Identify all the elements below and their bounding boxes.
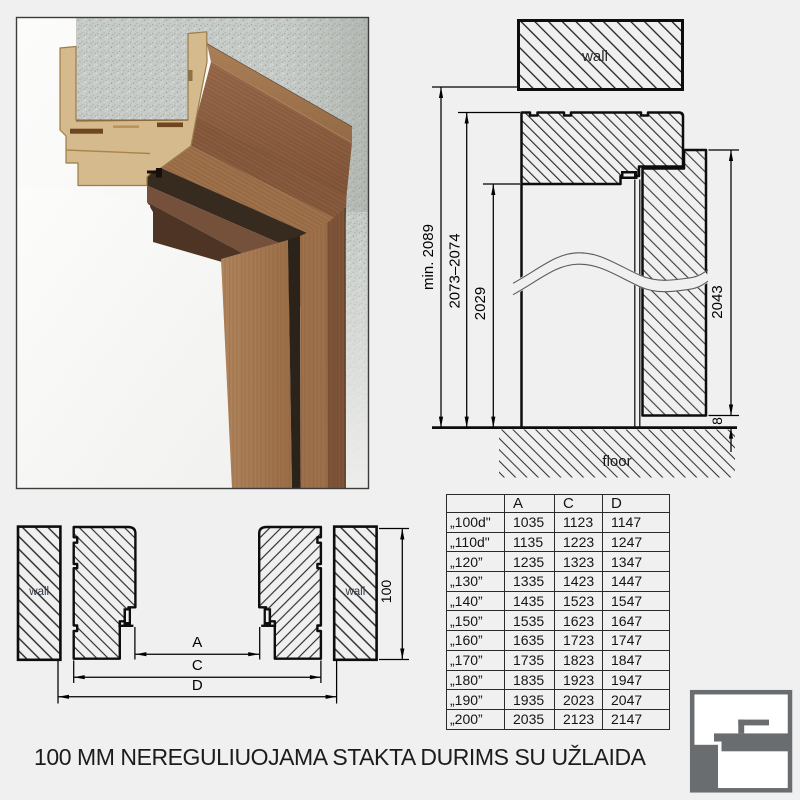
svg-text:2073–2074: 2073–2074 <box>447 233 464 308</box>
svg-text:wall: wall <box>28 586 49 598</box>
svg-text:min. 2089: min. 2089 <box>420 224 437 290</box>
svg-text:A: A <box>192 634 202 651</box>
svg-text:8: 8 <box>709 417 725 425</box>
svg-text:2029: 2029 <box>472 287 489 320</box>
svg-text:2043: 2043 <box>709 285 726 318</box>
svg-text:D: D <box>192 677 203 694</box>
svg-text:C: C <box>192 657 203 674</box>
svg-text:floor: floor <box>602 453 631 470</box>
svg-text:wall: wall <box>344 586 365 598</box>
svg-text:100: 100 <box>378 580 394 604</box>
svg-text:wall: wall <box>581 48 608 65</box>
